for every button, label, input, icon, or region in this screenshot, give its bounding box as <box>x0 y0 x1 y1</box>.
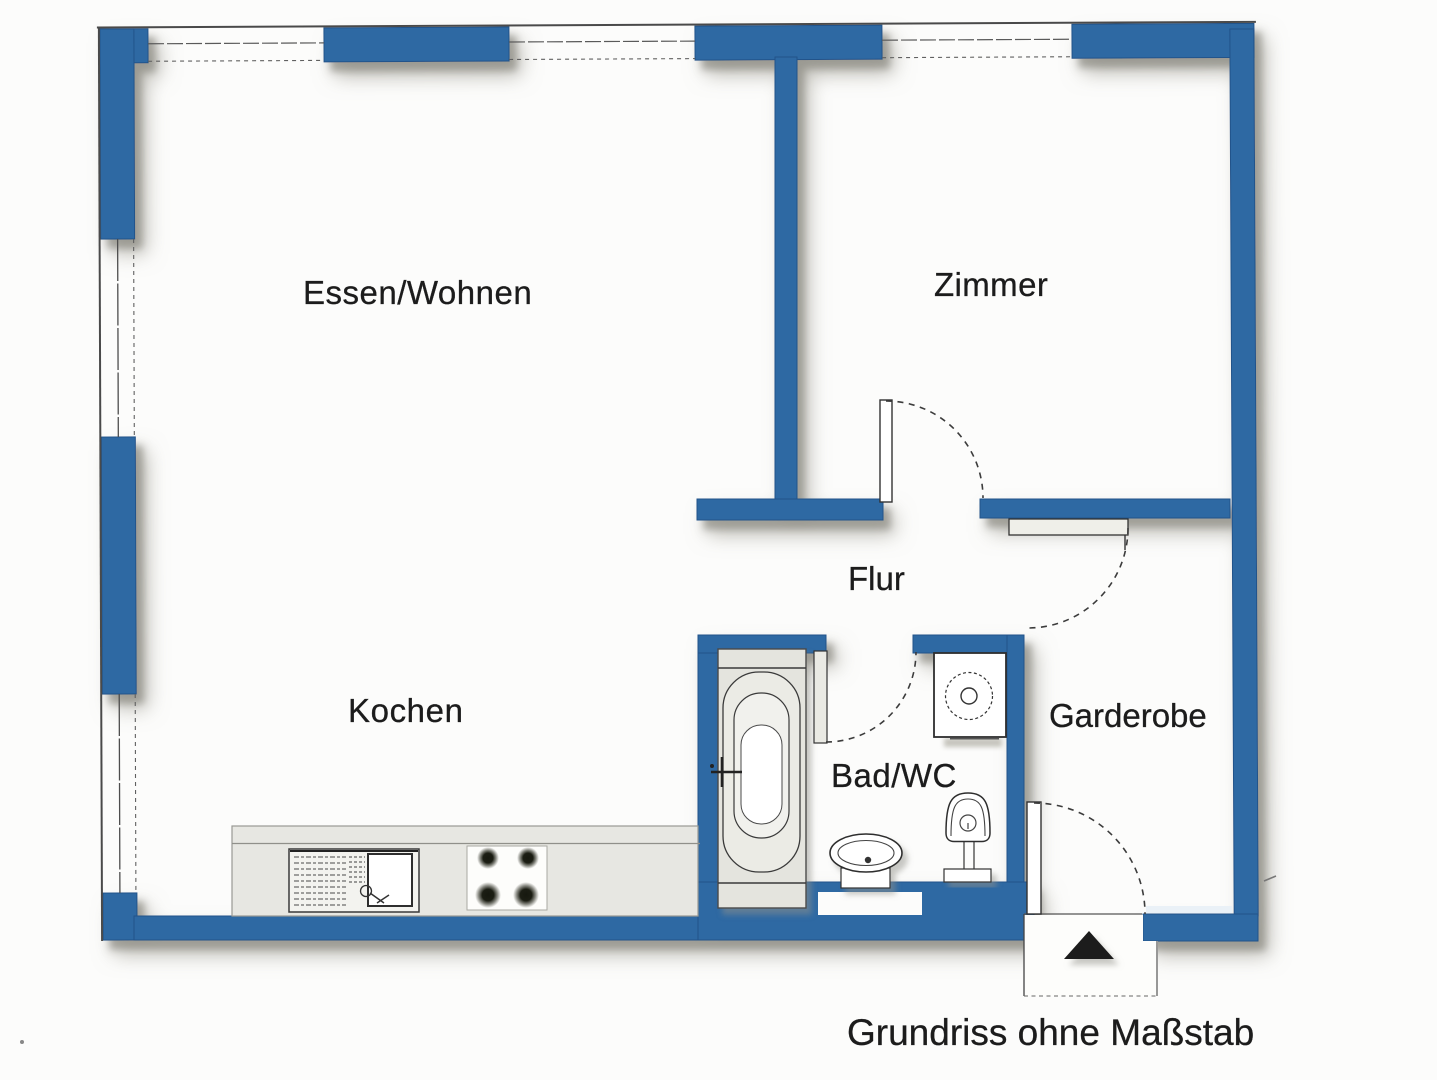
svg-text:Essen/Wohnen: Essen/Wohnen <box>303 274 532 311</box>
svg-text:Zimmer: Zimmer <box>934 266 1048 303</box>
svg-text:Bad/WC: Bad/WC <box>831 757 957 794</box>
svg-text:Flur: Flur <box>848 560 905 597</box>
svg-text:Kochen: Kochen <box>348 692 464 729</box>
svg-text:Garderobe: Garderobe <box>1049 697 1207 734</box>
svg-text:Grundriss ohne Maßstab: Grundriss ohne Maßstab <box>847 1012 1254 1053</box>
